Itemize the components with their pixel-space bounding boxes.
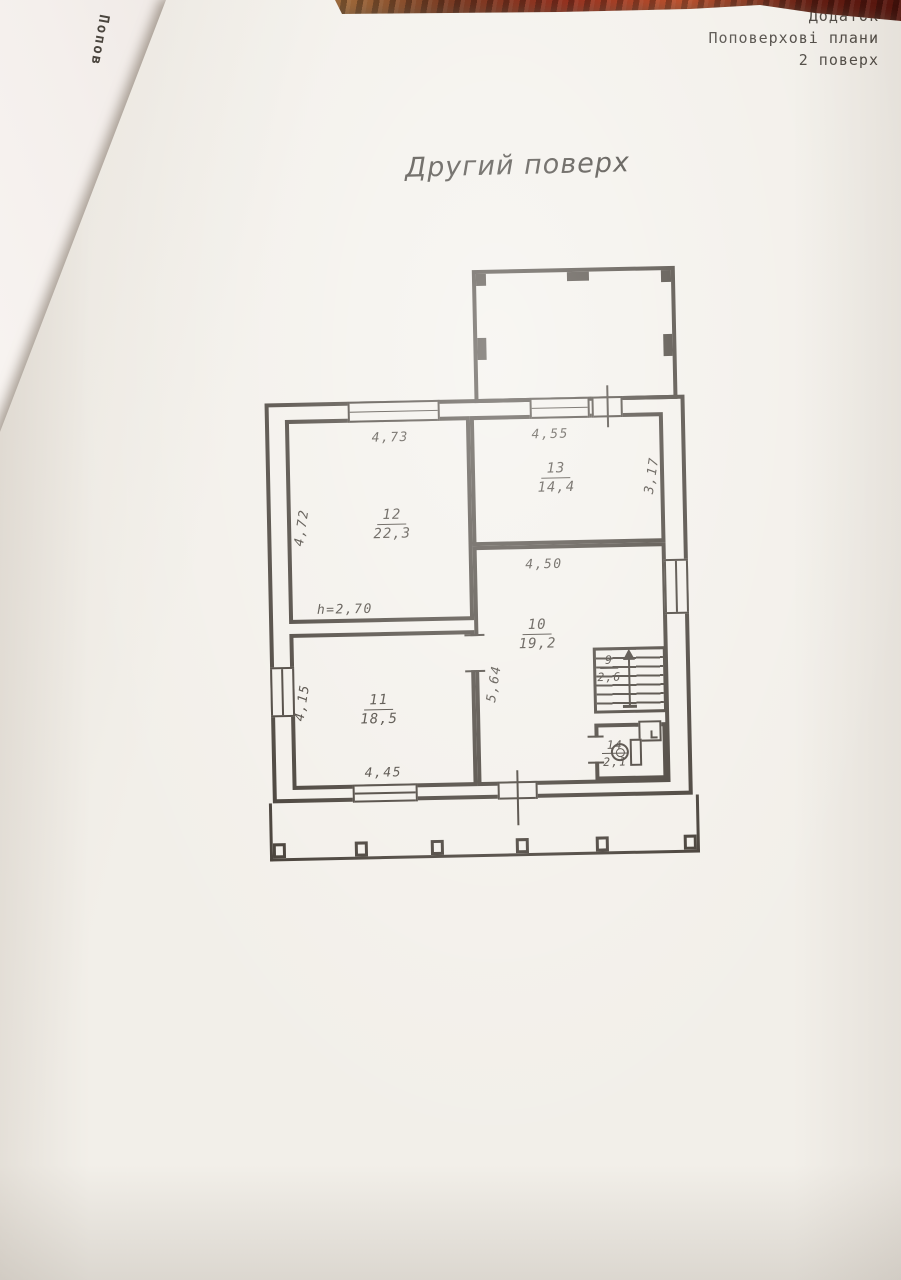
doc-header: Додаток Поповерхові плани 2 поверх (708, 6, 879, 71)
scanned-document-scene: Попов Додаток Поповерхові плани 2 поверх… (0, 0, 901, 1280)
page-shadow: Додаток Поповерхові плани 2 поверх Други… (0, 0, 901, 1280)
room-label-13: 13 14,4 (537, 457, 576, 496)
wall-notch (567, 272, 589, 281)
room-label-9: 9 2,6 (597, 649, 622, 684)
door-room-14 (593, 738, 602, 762)
header-line-1: Додаток (708, 6, 879, 28)
wall-notch (661, 270, 671, 282)
terrace-post (516, 838, 529, 853)
page-title: Другий поверх (405, 147, 631, 183)
terrace-post (431, 840, 444, 855)
wall-notch (477, 338, 486, 360)
floor-plan: 12 22,3 13 14,4 10 19,2 11 18,5 9 2,6 14… (260, 262, 701, 873)
dim-top-room-12: 4,73 (371, 430, 409, 446)
room-label-10: 10 19,2 (518, 613, 557, 652)
wall-notch (476, 274, 486, 286)
window-room-12 (348, 400, 440, 423)
window-room-11-left (270, 667, 295, 717)
window-room-10 (664, 559, 689, 614)
terrace-post (355, 841, 368, 856)
header-line-3: 2 поверх (708, 50, 879, 72)
stair-arrow-head (623, 649, 635, 660)
header-line-2: Поповерхові плани (708, 28, 879, 50)
room-label-12: 12 22,3 (373, 503, 412, 542)
terrace-post (273, 843, 286, 858)
toilet-tank-icon (630, 739, 643, 766)
balcony-room (472, 266, 678, 403)
wall-notch (663, 334, 672, 356)
stair-arrow-tail (623, 705, 637, 708)
room-label-11: 11 18,5 (360, 689, 399, 728)
dim-height-note: h=2,70 (317, 602, 373, 618)
dim-bottom-room-11: 4,45 (364, 765, 402, 781)
dim-top-room-10: 4,50 (525, 557, 563, 573)
document-page: Додаток Поповерхові плани 2 поверх Други… (0, 0, 901, 1280)
room-label-14: 14 2,1 (602, 733, 629, 769)
sink-icon (638, 720, 661, 741)
door-room-10 (468, 636, 481, 670)
terrace-post (684, 835, 697, 850)
terrace-post (596, 836, 609, 851)
window-room-13 (529, 397, 589, 419)
terrace (269, 794, 700, 861)
dim-top-room-13: 4,55 (531, 427, 569, 443)
